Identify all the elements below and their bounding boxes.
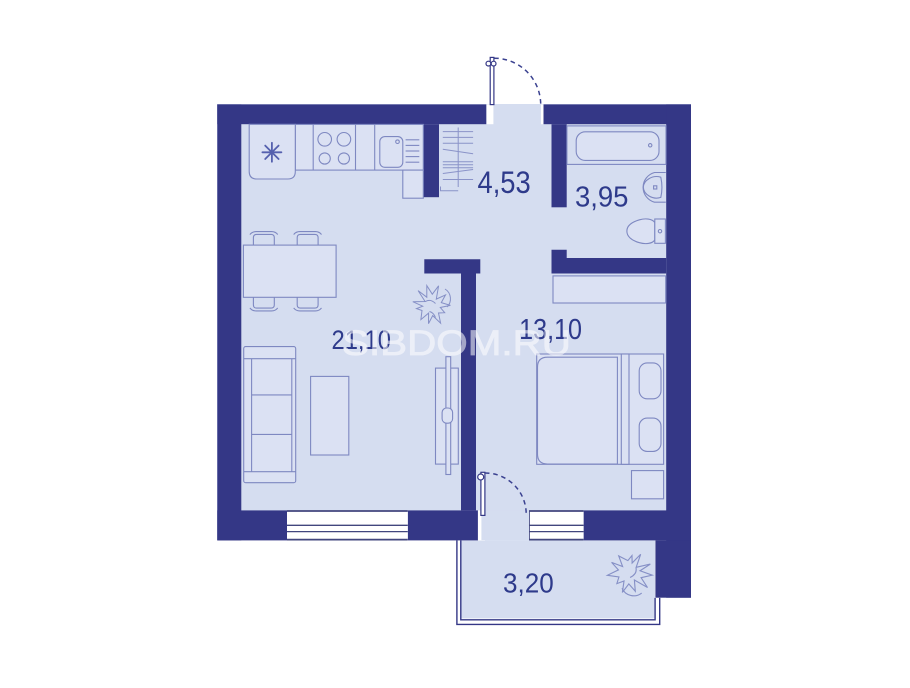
- svg-text:4,53: 4,53: [478, 165, 531, 200]
- svg-text:3,20: 3,20: [503, 567, 554, 598]
- svg-text:SIBDOM.RU: SIBDOM.RU: [342, 324, 571, 363]
- svg-text:3,95: 3,95: [575, 182, 629, 214]
